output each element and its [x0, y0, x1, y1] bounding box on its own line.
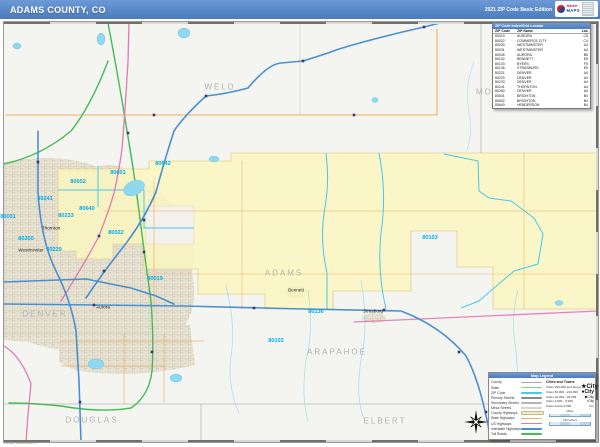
table-cell: B4: [574, 103, 590, 108]
legend-line-label: Secondary Streets: [491, 401, 521, 405]
legend-line-sample-icon: [521, 423, 542, 425]
scale-bar-block: Kilometers: [546, 419, 594, 426]
legend-line-label: ZIP Code: [491, 391, 521, 395]
zip-index-table: ZIP Code Index/Grid Locator ZIP Code ZIP…: [492, 22, 591, 109]
legend-scales: MilesKilometers: [546, 410, 594, 426]
scale-bar-block: Miles: [546, 410, 594, 417]
legend-city-range: Cities 2,500 - 9,999: [546, 399, 573, 403]
legend-line-label: Toll Roads: [491, 432, 521, 436]
map-legend: Map Legend CountyStateZIP CodePrimary St…: [488, 372, 596, 440]
legend-line-label: County: [491, 380, 521, 384]
legend-line-label: State: [491, 386, 521, 390]
legend-city-item: Cities 2,500 - 9,999•City: [546, 399, 594, 404]
legend-city-range: Cities 10,000 - 49,999: [546, 395, 576, 399]
table-row: 80640HENDERSONB4: [493, 103, 590, 108]
legend-line-sample-icon: [521, 397, 542, 399]
logo-wordmark: Market MAPS: [567, 5, 580, 12]
legend-city-items: Cities 250,000 and above★CityCities 50,0…: [546, 384, 594, 408]
legend-line-sample-icon: [521, 418, 542, 420]
legend-line-sample-icon: [521, 407, 542, 409]
legend-line-sample-icon: [521, 402, 542, 404]
legend-line-sample-icon: [521, 428, 542, 430]
legend-city-range: Cities 250,000 and above: [546, 385, 581, 389]
legend-line-label: Primary Streets: [491, 396, 521, 400]
map-copyright: ©2021 MarketMAPS: [4, 441, 37, 445]
legend-line-sample-icon: [521, 382, 542, 384]
legend-line-label: State Highways: [491, 416, 521, 420]
legend-line-label: Interstate Highways: [491, 427, 521, 431]
compass-rose-icon: [464, 410, 488, 434]
legend-line-label: US Highways: [491, 422, 521, 426]
brand-logo: Market MAPS: [555, 1, 598, 17]
logo-word-bottom: MAPS: [567, 9, 580, 13]
legend-line-item: Toll Roads: [491, 431, 544, 436]
legend-line-sample-icon: [521, 433, 542, 435]
legend-city-item: Cities 10,000 - 49,999■City: [546, 394, 594, 399]
zip-table-body: 80019AURORAC580022COMMERCE CITYC480030WE…: [493, 34, 590, 108]
legend-city-item: Cities below 2,500·City: [546, 404, 594, 409]
scale-bar: [549, 422, 591, 426]
edition-label: 2021 ZIP Code Basic Edition: [485, 7, 552, 13]
legend-city-range: Cities 50,000 - 249,999: [546, 390, 578, 394]
page-title: ADAMS COUNTY, CO: [10, 5, 106, 15]
county-cutout: [146, 206, 194, 244]
legend-line-sample-icon: [521, 392, 542, 394]
legend-city-range: Cities below 2,500: [546, 404, 571, 408]
grid-ticks-right: [596, 22, 598, 442]
legend-right-column: Cities and Towns Cities 250,000 and abov…: [544, 380, 594, 437]
logo-sample-card: [582, 2, 594, 16]
legend-line-label: Minor Streets: [491, 406, 521, 410]
page: ADAMS COUNTY, CO 2021 ZIP Code Basic Edi…: [0, 0, 600, 447]
table-cell: 80640: [493, 103, 515, 108]
legend-city-sample: ■City: [585, 394, 594, 399]
table-cell: HENDERSON: [515, 103, 574, 108]
grid-ticks-bottom: [4, 440, 598, 442]
legend-city-sample: •City: [587, 399, 594, 403]
legend-line-label: County Highways: [491, 411, 521, 415]
globe-icon: [557, 5, 565, 13]
legend-city-sample: ·City: [588, 404, 594, 408]
legend-line-items: CountyStateZIP CodePrimary StreetsSecond…: [491, 380, 544, 437]
scale-bar: [549, 414, 591, 418]
legend-line-sample-icon: [521, 411, 544, 415]
legend-line-sample-icon: [521, 387, 542, 389]
